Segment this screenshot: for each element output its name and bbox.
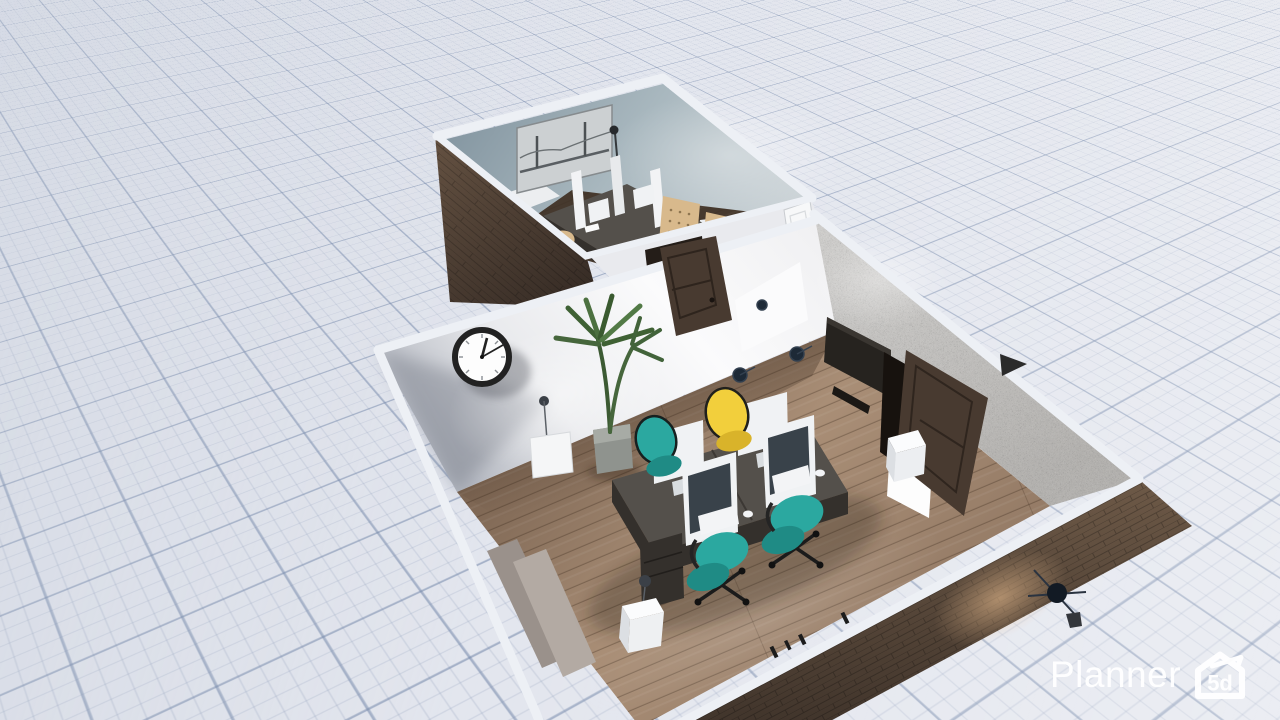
3d-viewport[interactable]: Planner 5d xyxy=(0,0,1280,720)
cube-lamp[interactable] xyxy=(886,430,926,482)
logo-wordmark: Planner xyxy=(1050,656,1181,693)
floorplan-render xyxy=(0,0,1280,720)
svg-text:5d: 5d xyxy=(1207,671,1233,696)
planner5d-watermark: Planner 5d xyxy=(1050,648,1249,700)
house-5d-logo-icon: 5d xyxy=(1191,648,1249,700)
